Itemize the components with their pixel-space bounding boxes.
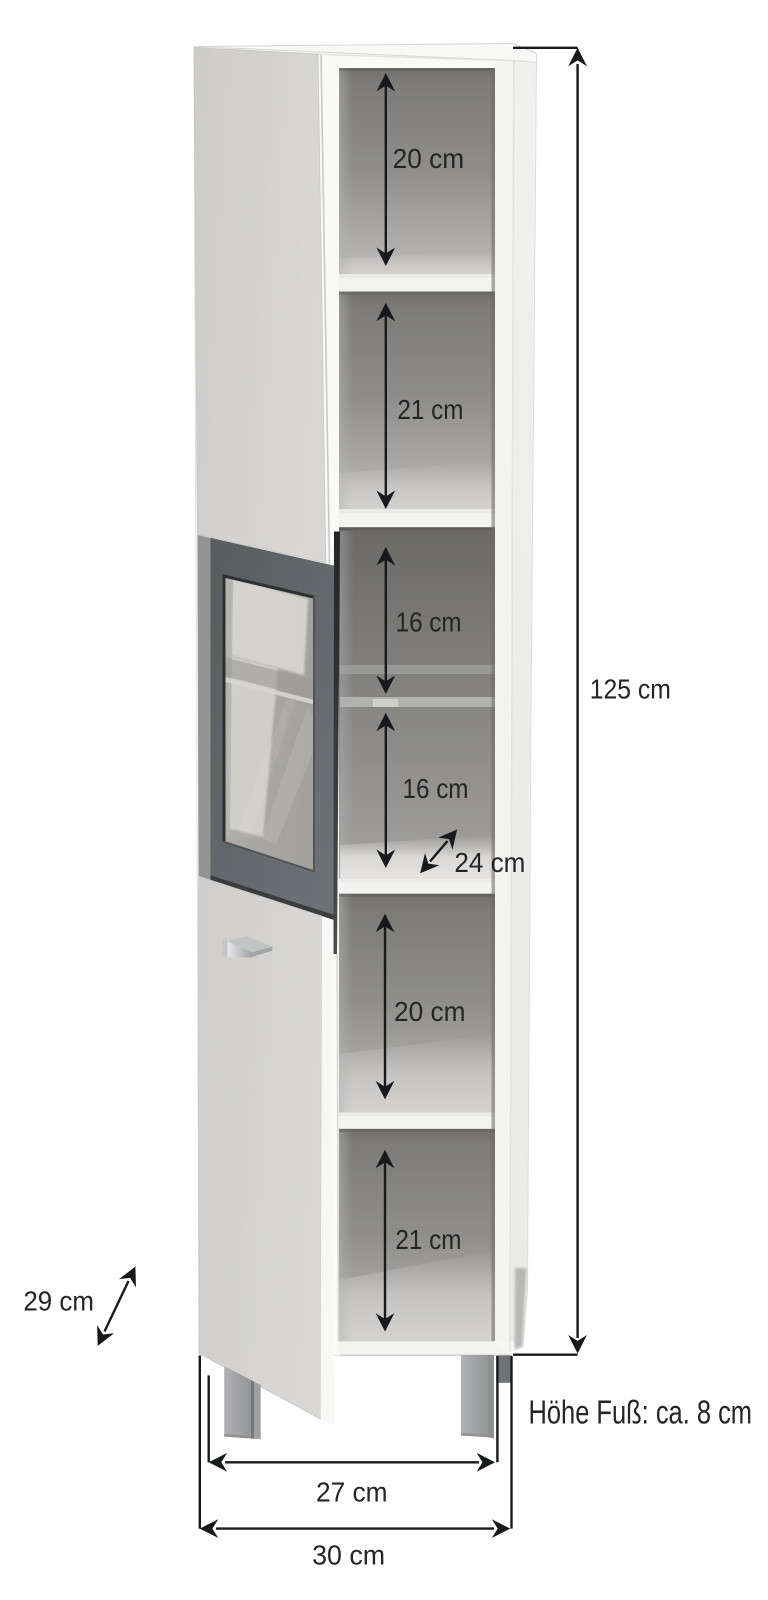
svg-text:125 cm: 125 cm: [590, 674, 671, 705]
svg-text:16 cm: 16 cm: [396, 606, 462, 637]
svg-text:24 cm: 24 cm: [454, 847, 525, 878]
svg-text:16 cm: 16 cm: [403, 773, 469, 804]
svg-text:20 cm: 20 cm: [393, 143, 465, 174]
svg-text:27 cm: 27 cm: [316, 1477, 388, 1508]
svg-text:Höhe Fuß: ca. 8 cm: Höhe Fuß: ca. 8 cm: [529, 1395, 753, 1432]
svg-text:29 cm: 29 cm: [23, 1286, 94, 1317]
svg-text:21 cm: 21 cm: [395, 1224, 461, 1255]
svg-text:21 cm: 21 cm: [397, 394, 463, 425]
svg-text:30 cm: 30 cm: [312, 1540, 385, 1571]
svg-text:20 cm: 20 cm: [394, 996, 466, 1027]
